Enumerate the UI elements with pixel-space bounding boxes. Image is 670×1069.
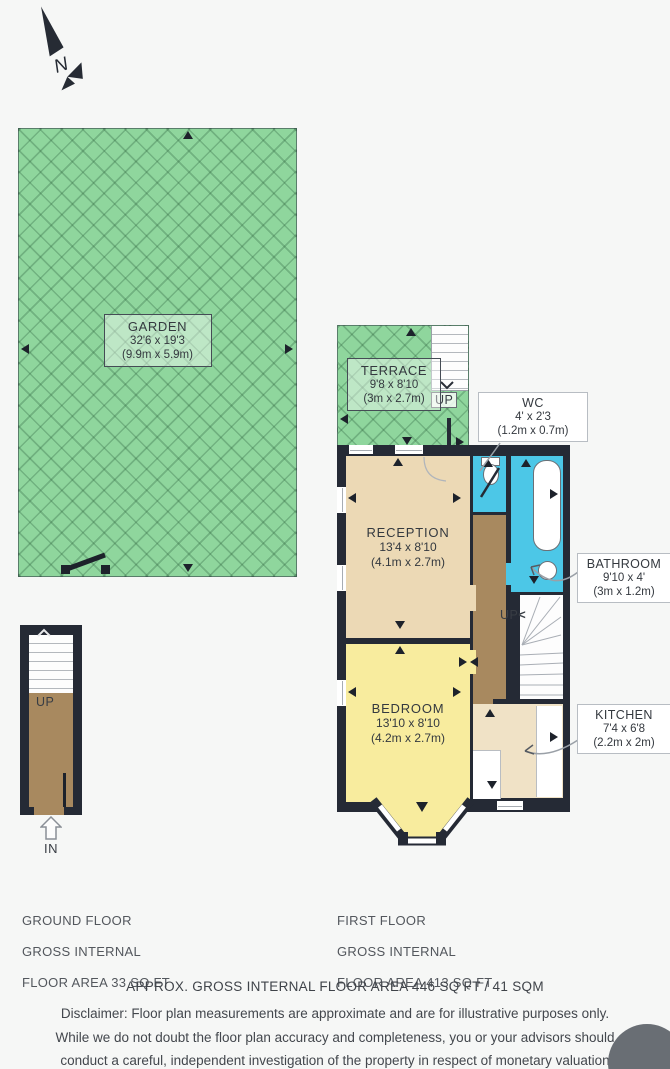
stairs-lines: [520, 595, 563, 699]
window: [337, 680, 346, 706]
ground-summary-line1: GROUND FLOOR: [22, 913, 170, 929]
kitchen-window: [497, 801, 523, 810]
ground-up-label: UP: [36, 695, 54, 709]
disclaimer-line-2: While we do not doubt the floor plan acc…: [0, 1030, 670, 1045]
wc-callout: WC 4' x 2'3 (1.2m x 0.7m): [478, 392, 588, 442]
terrace-dims-ft: 9'8 x 8'10: [353, 378, 435, 392]
marker-triangle: [406, 328, 416, 336]
reception-name: RECEPTION: [346, 525, 470, 540]
disclaimer-line-3: conduct a careful, independent investiga…: [0, 1053, 670, 1068]
bathtub: [533, 460, 561, 551]
marker-triangle: [529, 576, 539, 584]
bay-window: [370, 797, 474, 851]
terrace-label: TERRACE 9'8 x 8'10 (3m x 2.7m): [347, 358, 441, 411]
hall-bathroom-door: [506, 563, 511, 585]
north-arrow-icon: N: [18, 2, 94, 98]
garden-name: GARDEN: [110, 319, 206, 334]
garden-dims-m: (9.9m x 5.9m): [110, 348, 206, 362]
chevron-left-icon: <: [518, 608, 526, 622]
marker-triangle: [183, 564, 193, 572]
ground-floor-plan: UP: [20, 625, 82, 815]
marker-triangle: [21, 344, 29, 354]
window: [395, 445, 423, 454]
bathroom-callout: BATHROOM 9'10 x 4' (3m x 1.2m): [577, 553, 670, 603]
marker-triangle: [453, 493, 461, 503]
marker-triangle: [348, 687, 356, 697]
first-summary-line2: GROSS INTERNAL: [337, 944, 493, 960]
hall-up-text: UP: [500, 608, 518, 622]
garden-gate: [57, 549, 137, 575]
wc-dims-ft: 4' x 2'3: [483, 410, 583, 424]
first-floor-building: RECEPTION 13'4 x 8'10 (4.1m x 2.7m): [337, 445, 570, 812]
marker-triangle: [348, 493, 356, 503]
marker-triangle: [285, 344, 293, 354]
first-summary-line1: FIRST FLOOR: [337, 913, 493, 929]
hall-up-label: UP<: [500, 608, 526, 622]
marker-triangle: [550, 489, 558, 499]
terrace-name: TERRACE: [353, 363, 435, 378]
window: [337, 565, 346, 591]
wall-stub: [63, 773, 66, 807]
disclaimer-line-1: Disclaimer: Floor plan measurements are …: [0, 1006, 670, 1021]
room-reception: RECEPTION 13'4 x 8'10 (4.1m x 2.7m): [346, 456, 470, 638]
floor-plan-page: N GARDEN 32'6 x 19'3 (9.9m x 5.9m) UP TE: [0, 0, 670, 1069]
entrance-door-gap: [34, 807, 64, 815]
wc-dims-m: (1.2m x 0.7m): [483, 424, 583, 438]
marker-triangle: [340, 414, 348, 424]
total-area-line: APPROX. GROSS INTERNAL FLOOR AREA 446 SQ…: [0, 979, 670, 994]
ground-hall-floor: [29, 693, 73, 807]
bedroom-dims-ft: 13'10 x 8'10: [346, 716, 470, 731]
marker-triangle: [483, 459, 493, 467]
bathroom-dims-ft: 9'10 x 4': [582, 571, 666, 585]
bedroom-label: BEDROOM 13'10 x 8'10 (4.2m x 2.7m): [346, 701, 470, 746]
bathroom-dims-m: (3m x 1.2m): [582, 585, 666, 599]
kitchen-name: KITCHEN: [582, 708, 666, 722]
reception-hall-door: [467, 585, 476, 611]
marker-triangle: [395, 621, 405, 629]
marker-triangle: [470, 657, 478, 667]
stairs-first-floor: [520, 595, 563, 699]
terrace-area: UP TERRACE 9'8 x 8'10 (3m x 2.7m): [337, 325, 469, 450]
ground-summary-line2: GROSS INTERNAL: [22, 944, 170, 960]
north-label: N: [51, 53, 71, 77]
marker-triangle: [521, 459, 531, 467]
marker-triangle: [453, 687, 461, 697]
hallway: [473, 515, 506, 699]
wc-name: WC: [483, 396, 583, 410]
garden-area: GARDEN 32'6 x 19'3 (9.9m x 5.9m): [18, 128, 297, 577]
sink: [538, 561, 557, 580]
reception-dims-ft: 13'4 x 8'10: [346, 540, 470, 555]
marker-triangle: [183, 131, 193, 139]
kitchen-counter-right: [536, 706, 562, 797]
room-bedroom: BEDROOM 13'10 x 8'10 (4.2m x 2.7m): [346, 644, 470, 802]
toilet-bowl: [483, 464, 499, 485]
marker-triangle: [393, 458, 403, 466]
marker-triangle: [395, 646, 405, 654]
bedroom-dims-m: (4.2m x 2.7m): [346, 731, 470, 746]
kitchen-dims-m: (2.2m x 2m): [582, 736, 666, 750]
reception-dims-m: (4.1m x 2.7m): [346, 555, 470, 570]
reception-label: RECEPTION 13'4 x 8'10 (4.1m x 2.7m): [346, 525, 470, 570]
window: [349, 445, 373, 454]
chevron-up-icon: [37, 628, 51, 637]
marker-triangle: [550, 732, 558, 742]
marker-triangle: [487, 781, 497, 789]
marker-triangle: [402, 437, 412, 445]
marker-triangle: [485, 709, 495, 717]
bathroom-name: BATHROOM: [582, 557, 666, 571]
garden-label: GARDEN 32'6 x 19'3 (9.9m x 5.9m): [104, 314, 212, 367]
marker-triangle: [459, 657, 467, 667]
ground-stairs: [29, 635, 73, 693]
kitchen-dims-ft: 7'4 x 6'8: [582, 722, 666, 736]
chevron-down-icon: [440, 381, 454, 390]
terrace-dims-m: (3m x 2.7m): [353, 392, 435, 406]
kitchen-callout: KITCHEN 7'4 x 6'8 (2.2m x 2m): [577, 704, 670, 754]
kitchen-counter-left: [473, 750, 501, 799]
entrance-arrow-icon: [40, 816, 62, 840]
entrance-in-label: IN: [36, 841, 66, 856]
window: [337, 487, 346, 513]
garden-dims-ft: 32'6 x 19'3: [110, 334, 206, 348]
bedroom-name: BEDROOM: [346, 701, 470, 716]
room-bathroom: [511, 456, 563, 592]
